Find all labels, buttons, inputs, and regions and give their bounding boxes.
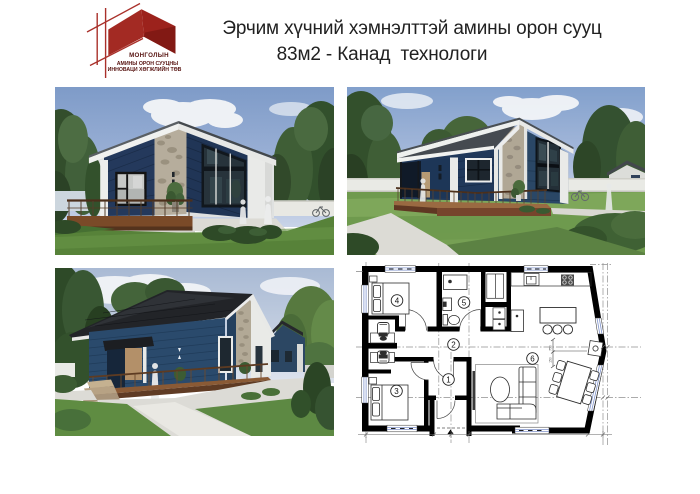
svg-text:1: 1 [446,375,451,384]
svg-text:ИННОВАЦИ ХӨГЖЛИЙН ТӨВ: ИННОВАЦИ ХӨГЖЛИЙН ТӨВ [108,65,182,73]
svg-text:4: 4 [395,296,400,305]
svg-text:2: 2 [451,340,456,349]
svg-text:5: 5 [462,298,467,307]
svg-text:3: 3 [394,387,399,396]
svg-text:750: 750 [549,345,553,351]
svg-text:150: 150 [549,357,553,363]
svg-text:МОНГОЛЫН: МОНГОЛЫН [129,52,169,59]
svg-text:6: 6 [530,354,535,363]
